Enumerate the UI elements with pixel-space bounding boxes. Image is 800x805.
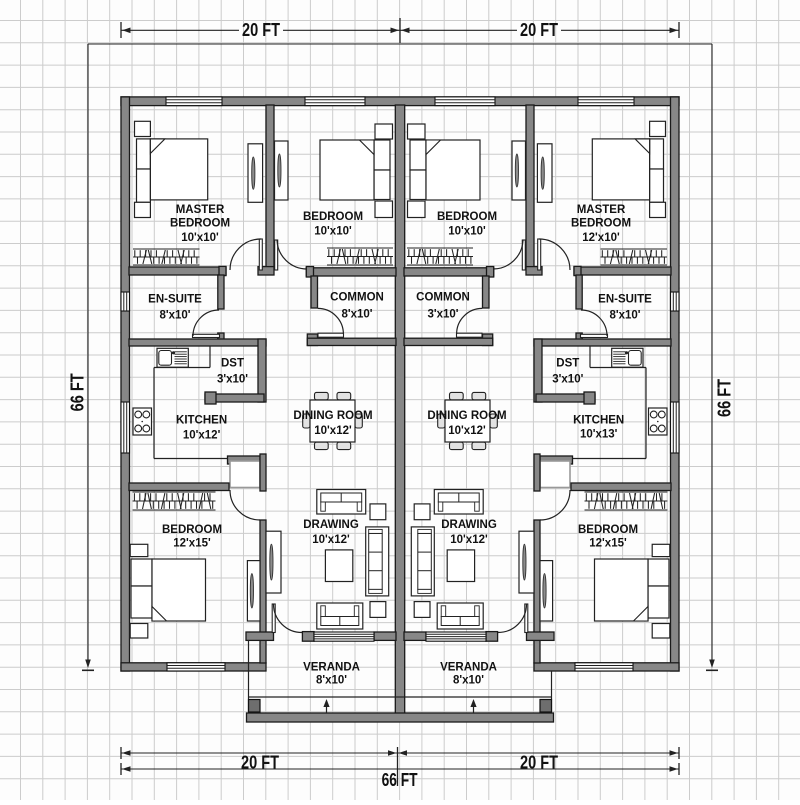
svg-text:10'x12': 10'x12': [450, 534, 488, 546]
svg-text:10'x13': 10'x13': [580, 429, 618, 441]
svg-text:12'x10': 12'x10': [582, 232, 620, 244]
svg-text:20 FT: 20 FT: [242, 20, 280, 40]
svg-text:3'x10': 3'x10': [217, 374, 248, 386]
svg-text:10'x12': 10'x12': [448, 425, 486, 437]
svg-text:10'x10': 10'x10': [448, 225, 486, 237]
svg-text:10'x12': 10'x12': [314, 425, 352, 437]
svg-text:COMMON: COMMON: [416, 292, 470, 304]
svg-text:DST: DST: [556, 358, 579, 370]
svg-text:DRAWING: DRAWING: [303, 519, 359, 531]
svg-text:BEDROOM: BEDROOM: [437, 211, 497, 223]
svg-text:8'x10': 8'x10': [159, 310, 190, 322]
svg-text:EN-SUITE: EN-SUITE: [598, 293, 652, 305]
svg-text:MASTER: MASTER: [577, 204, 626, 216]
svg-text:BEDROOM: BEDROOM: [571, 218, 631, 230]
svg-text:8'x10': 8'x10': [609, 310, 640, 322]
svg-text:10'x10': 10'x10': [181, 232, 219, 244]
svg-text:DST: DST: [221, 358, 244, 370]
svg-text:10'x12': 10'x12': [183, 429, 221, 441]
svg-text:DRAWING: DRAWING: [441, 519, 497, 531]
svg-text:12'x15': 12'x15': [589, 538, 627, 550]
svg-text:3'x10': 3'x10': [552, 374, 583, 386]
svg-text:10'x12': 10'x12': [312, 534, 350, 546]
svg-text:3'x10': 3'x10': [427, 308, 458, 320]
svg-text:BEDROOM: BEDROOM: [578, 524, 638, 536]
svg-text:66 FT: 66 FT: [715, 379, 735, 417]
svg-text:BEDROOM: BEDROOM: [162, 524, 222, 536]
svg-text:MASTER: MASTER: [176, 204, 225, 216]
svg-text:COMMON: COMMON: [330, 292, 384, 304]
svg-text:KITCHEN: KITCHEN: [573, 415, 624, 427]
svg-text:DINING ROOM: DINING ROOM: [427, 410, 506, 422]
svg-text:VERANDA: VERANDA: [440, 662, 497, 674]
svg-text:KITCHEN: KITCHEN: [176, 415, 227, 427]
svg-text:DINING ROOM: DINING ROOM: [293, 410, 372, 422]
svg-text:BEDROOM: BEDROOM: [303, 211, 363, 223]
svg-text:8'x10': 8'x10': [316, 675, 347, 687]
svg-text:EN-SUITE: EN-SUITE: [148, 293, 202, 305]
svg-text:VERANDA: VERANDA: [303, 662, 360, 674]
svg-text:8'x10': 8'x10': [453, 675, 484, 687]
svg-text:8'x10': 8'x10': [341, 308, 372, 320]
svg-text:20 FT: 20 FT: [520, 20, 558, 40]
svg-text:66 FT: 66 FT: [68, 373, 88, 411]
svg-text:66 FT: 66 FT: [382, 770, 418, 790]
svg-text:10'x10': 10'x10': [314, 225, 352, 237]
svg-text:12'x15': 12'x15': [173, 538, 211, 550]
svg-text:BEDROOM: BEDROOM: [170, 218, 230, 230]
